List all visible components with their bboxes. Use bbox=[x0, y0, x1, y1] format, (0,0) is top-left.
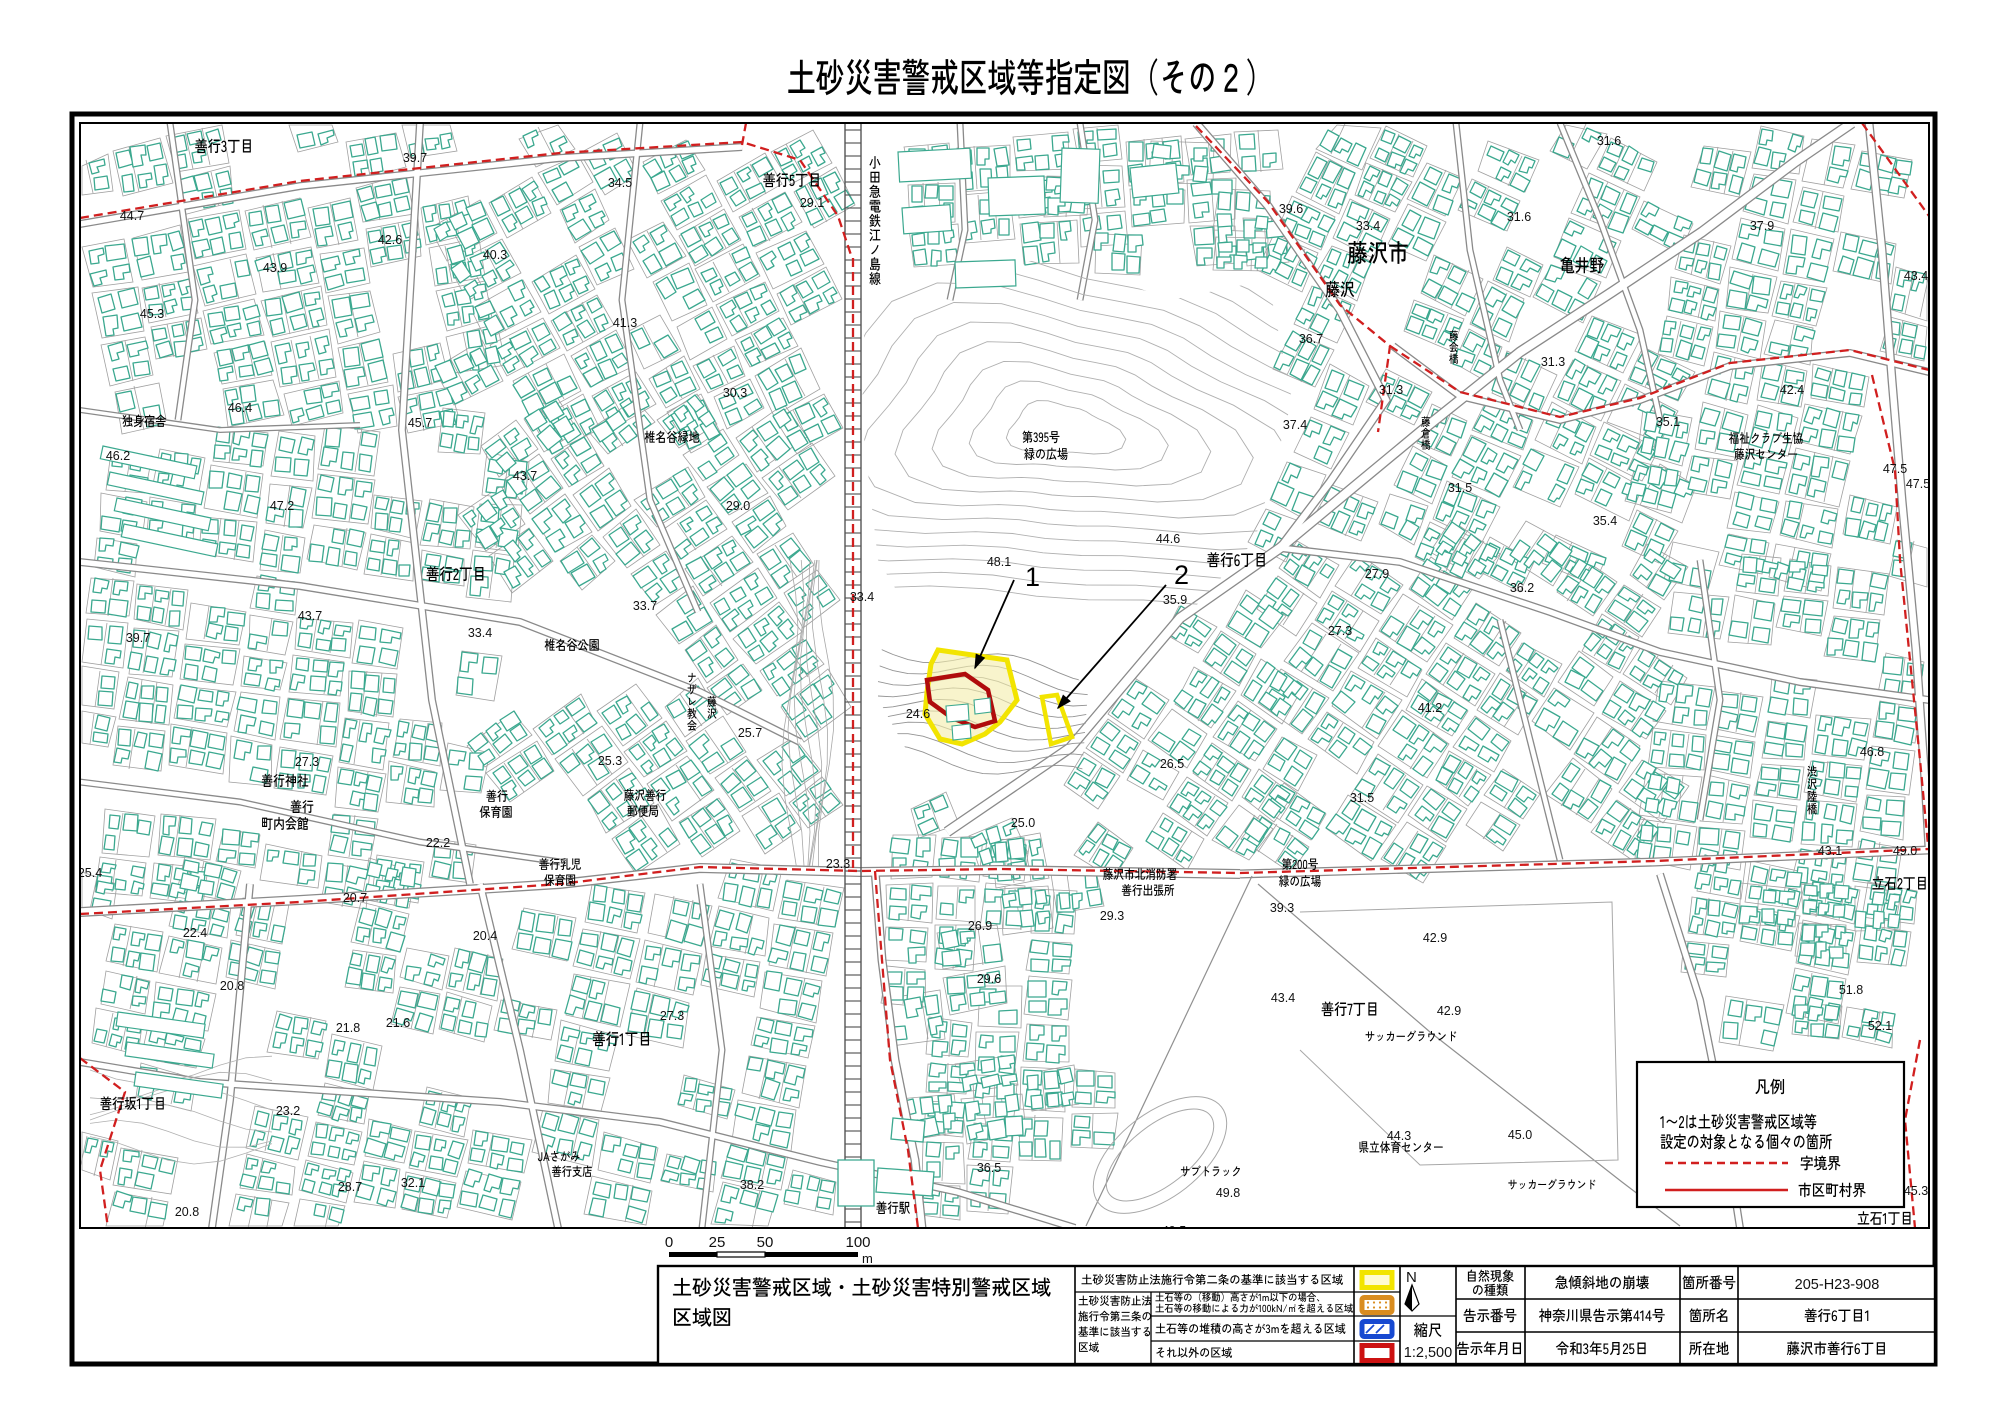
svg-text:31.5: 31.5 bbox=[1350, 791, 1374, 805]
svg-text:42.9: 42.9 bbox=[1437, 1004, 1461, 1018]
svg-text:33.7: 33.7 bbox=[633, 599, 657, 613]
svg-text:34.5: 34.5 bbox=[608, 176, 632, 190]
svg-text:31.3: 31.3 bbox=[1541, 355, 1565, 369]
svg-text:41.3: 41.3 bbox=[613, 316, 637, 330]
svg-text:33.4: 33.4 bbox=[1356, 219, 1380, 233]
svg-text:43.7: 43.7 bbox=[513, 469, 537, 483]
svg-text:28.7: 28.7 bbox=[338, 1180, 362, 1194]
svg-text:22.4: 22.4 bbox=[183, 926, 207, 940]
svg-text:45.0: 45.0 bbox=[1508, 1128, 1532, 1142]
svg-text:31.6: 31.6 bbox=[1597, 134, 1621, 148]
svg-text:35.4: 35.4 bbox=[1593, 514, 1617, 528]
svg-text:21.8: 21.8 bbox=[336, 1021, 360, 1035]
svg-text:29.0: 29.0 bbox=[726, 499, 750, 513]
svg-text:49.0: 49.0 bbox=[1893, 844, 1917, 858]
svg-text:25.4: 25.4 bbox=[78, 866, 102, 880]
svg-text:20.7: 20.7 bbox=[343, 891, 367, 905]
svg-text:33.4: 33.4 bbox=[850, 590, 874, 604]
svg-text:29.6: 29.6 bbox=[977, 972, 1001, 986]
svg-text:48.1: 48.1 bbox=[987, 555, 1011, 569]
svg-text:43.7: 43.7 bbox=[298, 609, 322, 623]
svg-text:45.3: 45.3 bbox=[1904, 1184, 1928, 1198]
svg-text:31.5: 31.5 bbox=[1448, 481, 1472, 495]
svg-text:51.8: 51.8 bbox=[1839, 983, 1863, 997]
svg-text:44.3: 44.3 bbox=[1387, 1129, 1411, 1143]
svg-text:37.4: 37.4 bbox=[1283, 418, 1307, 432]
svg-text:52.1: 52.1 bbox=[1868, 1019, 1892, 1033]
svg-text:23.3: 23.3 bbox=[826, 857, 850, 871]
svg-text:43.4: 43.4 bbox=[1271, 991, 1295, 1005]
svg-text:38.2: 38.2 bbox=[740, 1178, 764, 1192]
svg-text:205-H23-908: 205-H23-908 bbox=[1795, 1277, 1880, 1293]
svg-text:26.9: 26.9 bbox=[968, 919, 992, 933]
svg-text:27.3: 27.3 bbox=[295, 755, 319, 769]
svg-text:23.2: 23.2 bbox=[276, 1104, 300, 1118]
svg-text:49.8: 49.8 bbox=[1216, 1186, 1240, 1200]
svg-text:44.6: 44.6 bbox=[1156, 532, 1180, 546]
svg-text:20.8: 20.8 bbox=[220, 979, 244, 993]
svg-text:43.9: 43.9 bbox=[263, 261, 287, 275]
svg-text:39.7: 39.7 bbox=[403, 151, 427, 165]
svg-text:1:2,500: 1:2,500 bbox=[1404, 1345, 1452, 1361]
svg-text:33.4: 33.4 bbox=[468, 626, 492, 640]
svg-text:44.7: 44.7 bbox=[120, 209, 144, 223]
svg-text:24.6: 24.6 bbox=[906, 707, 930, 721]
svg-text:2: 2 bbox=[1174, 560, 1189, 590]
svg-text:27.3: 27.3 bbox=[1328, 624, 1352, 638]
svg-text:45.7: 45.7 bbox=[408, 416, 432, 430]
svg-text:42.6: 42.6 bbox=[378, 233, 402, 247]
svg-text:26.5: 26.5 bbox=[1160, 757, 1184, 771]
svg-text:46.2: 46.2 bbox=[106, 449, 130, 463]
svg-text:25.0: 25.0 bbox=[1011, 816, 1035, 830]
svg-text:27.3: 27.3 bbox=[660, 1009, 684, 1023]
svg-text:31.3: 31.3 bbox=[1379, 383, 1403, 397]
svg-text:41.2: 41.2 bbox=[1418, 701, 1442, 715]
svg-text:35.1: 35.1 bbox=[1656, 415, 1680, 429]
svg-text:35.9: 35.9 bbox=[1163, 593, 1187, 607]
svg-text:32.1: 32.1 bbox=[401, 1176, 425, 1190]
svg-text:36.2: 36.2 bbox=[1510, 581, 1534, 595]
svg-text:36.5: 36.5 bbox=[977, 1161, 1001, 1175]
svg-text:50: 50 bbox=[757, 1234, 774, 1251]
svg-text:42.9: 42.9 bbox=[1423, 931, 1447, 945]
svg-text:27.9: 27.9 bbox=[1365, 567, 1389, 581]
svg-text:22.2: 22.2 bbox=[426, 836, 450, 850]
svg-text:m: m bbox=[862, 1251, 873, 1266]
svg-text:45.3: 45.3 bbox=[140, 307, 164, 321]
svg-text:47.2: 47.2 bbox=[270, 499, 294, 513]
svg-text:21.6: 21.6 bbox=[386, 1016, 410, 1030]
svg-text:43.1: 43.1 bbox=[1818, 844, 1842, 858]
svg-text:29.1: 29.1 bbox=[800, 196, 824, 210]
svg-text:100: 100 bbox=[845, 1234, 870, 1251]
svg-text:30.3: 30.3 bbox=[723, 386, 747, 400]
svg-text:46.8: 46.8 bbox=[1860, 745, 1884, 759]
svg-text:39.7: 39.7 bbox=[126, 631, 150, 645]
svg-text:1: 1 bbox=[1025, 562, 1040, 592]
svg-text:39.6: 39.6 bbox=[1279, 202, 1303, 216]
svg-text:37.9: 37.9 bbox=[1750, 219, 1774, 233]
svg-text:N: N bbox=[1406, 1269, 1417, 1286]
svg-text:39.3: 39.3 bbox=[1270, 901, 1294, 915]
svg-text:29.3: 29.3 bbox=[1100, 909, 1124, 923]
svg-text:46.4: 46.4 bbox=[228, 401, 252, 415]
svg-text:31.6: 31.6 bbox=[1507, 210, 1531, 224]
svg-text:47.5: 47.5 bbox=[1906, 477, 1930, 491]
svg-text:40.3: 40.3 bbox=[483, 248, 507, 262]
svg-text:25.7: 25.7 bbox=[738, 726, 762, 740]
svg-text:36.7: 36.7 bbox=[1299, 332, 1323, 346]
svg-text:25: 25 bbox=[709, 1234, 726, 1251]
svg-text:47.5: 47.5 bbox=[1883, 462, 1907, 476]
svg-text:25.3: 25.3 bbox=[598, 754, 622, 768]
svg-text:0: 0 bbox=[665, 1234, 673, 1251]
svg-text:20.8: 20.8 bbox=[175, 1205, 199, 1219]
svg-text:20.4: 20.4 bbox=[473, 929, 497, 943]
svg-text:43.4: 43.4 bbox=[1904, 269, 1928, 283]
svg-text:42.4: 42.4 bbox=[1780, 383, 1804, 397]
